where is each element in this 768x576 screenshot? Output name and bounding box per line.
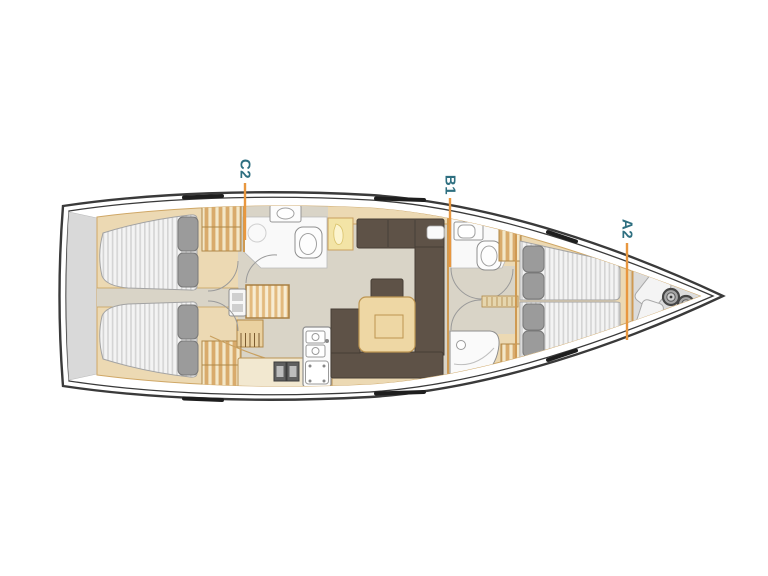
windlass-drum xyxy=(663,289,679,305)
pillow xyxy=(178,217,198,251)
sink-bowl xyxy=(277,208,294,219)
label-c2: C2 xyxy=(237,159,254,179)
salon-table xyxy=(359,297,415,352)
yacht-layout-page: C2 B1 A2 xyxy=(0,0,768,576)
label-a2: A2 xyxy=(619,219,636,239)
faucet xyxy=(325,339,329,343)
label-b1: B1 xyxy=(442,175,459,195)
oven-knob xyxy=(323,380,326,383)
pillow xyxy=(178,341,198,375)
track-mark xyxy=(376,199,424,201)
oven-knob xyxy=(323,365,326,368)
engine-panel-detail xyxy=(232,304,243,312)
salon-sofa-right xyxy=(415,247,444,355)
track-mark xyxy=(376,392,424,394)
pillow xyxy=(523,246,544,272)
pillow xyxy=(178,305,198,339)
stove-burner-plate xyxy=(277,366,284,377)
track-mark xyxy=(184,399,222,401)
pillow xyxy=(523,273,544,299)
galley-sink xyxy=(306,345,325,357)
oven-knob xyxy=(309,380,312,383)
engine-panel-detail xyxy=(232,293,243,301)
toilet xyxy=(295,227,322,258)
stern-platform xyxy=(67,212,98,380)
yacht-layout-diagram: C2 B1 A2 xyxy=(0,0,768,576)
deck-hatch xyxy=(427,226,444,239)
companionway-steps xyxy=(246,285,289,318)
salon-sofa-bottom xyxy=(331,352,443,378)
stove-burner-plate xyxy=(290,366,297,377)
sink-bowl xyxy=(458,225,475,238)
oven-knob xyxy=(309,365,312,368)
salon-sofa-left xyxy=(331,309,360,353)
salon-backrest xyxy=(371,279,403,299)
track-mark xyxy=(184,196,222,198)
pillow xyxy=(178,253,198,287)
wet-locker xyxy=(328,218,353,250)
pillow xyxy=(523,304,544,330)
shower-drain xyxy=(457,341,466,350)
galley-sink xyxy=(306,331,325,343)
